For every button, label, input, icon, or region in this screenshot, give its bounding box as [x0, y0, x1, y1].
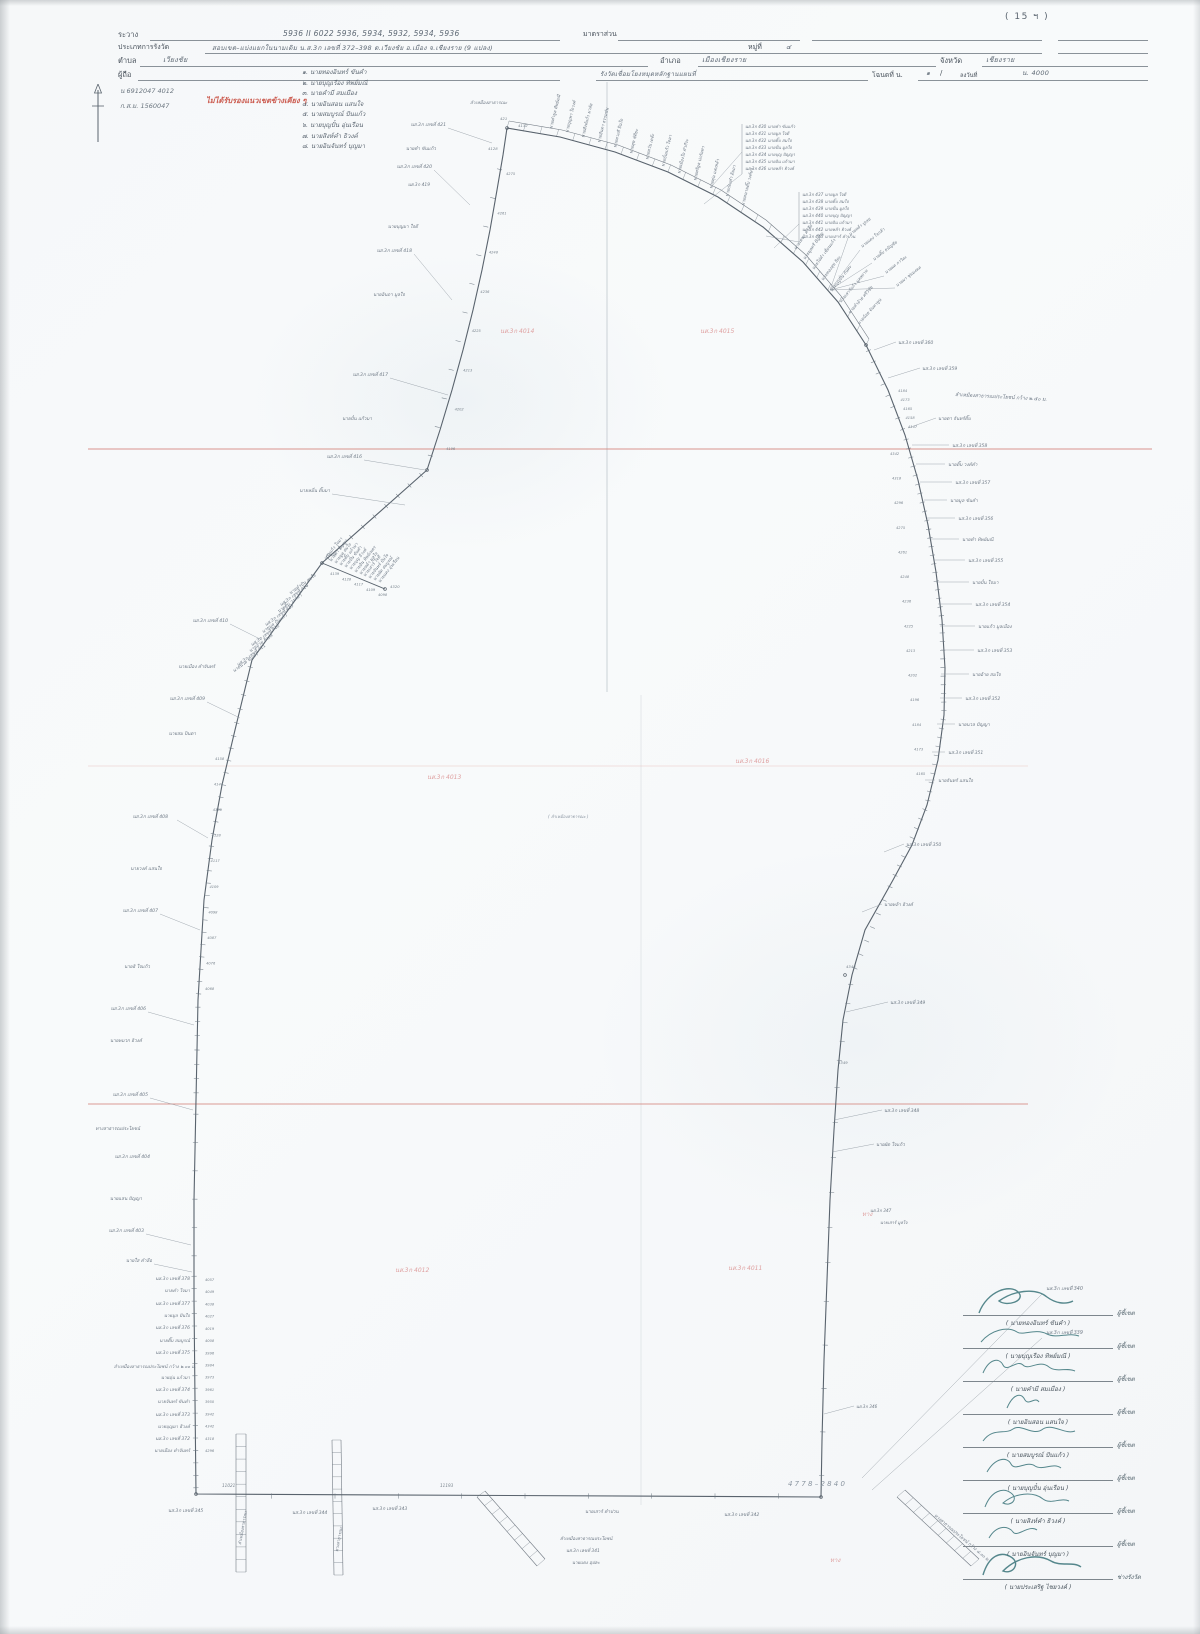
edge-label: นายจันทร์ ขันคำ	[158, 1399, 191, 1405]
signature-stroke	[983, 1427, 1075, 1441]
boundary-tick	[469, 283, 474, 284]
edge-label: นายหล้า ธิวงค์	[884, 901, 914, 908]
edge-label: นส.3ก 434 นายบุญ ปัญญา	[745, 152, 796, 158]
edge-label: นายบุญมา ใจดี	[388, 223, 419, 230]
boundary-tick	[934, 581, 939, 582]
legend-item-5: ๕. นายสมบูรณ์ ปันแก้ว	[302, 110, 367, 121]
scanned-survey-sheet: { "page": { "marker": "( 15 ฯ )" }, "ref…	[0, 0, 1200, 1634]
leader-line	[766, 236, 799, 242]
road-hatch	[573, 133, 575, 140]
station-number: 4213	[906, 649, 916, 653]
boundary-tick	[917, 493, 922, 494]
edge-label: นส.3ก 433 นายปั๋น มูลใจ	[745, 144, 792, 151]
station-number: 4296	[205, 1449, 215, 1453]
edge-label: ( ลำเหมืองสาธารณะ )	[548, 814, 589, 819]
edge-label: นายแดง อุปละ	[572, 1560, 600, 1566]
pink-parcel-code: นส.3ก 4016	[735, 758, 769, 765]
leader-line	[874, 342, 896, 350]
station-number: 4225	[472, 329, 482, 333]
header-rule-6	[140, 66, 648, 67]
edge-label: 11193	[440, 1483, 454, 1488]
boundary-tick	[936, 598, 941, 599]
station-number: 3984	[205, 1364, 215, 1368]
header-value-14: รังวัดเชื่อมโยงหมุดหลักฐานแผนที่	[600, 69, 696, 79]
signature-stroke	[979, 1289, 1073, 1313]
boundary-marker-dot	[844, 974, 847, 977]
road-hatch	[817, 271, 820, 278]
edge-label: ทางสาธารณะ	[334, 1526, 343, 1553]
station-number: 4184	[912, 723, 922, 727]
boundary-tick	[870, 926, 875, 928]
station-number: 4158	[906, 416, 916, 420]
road-hatch	[492, 1508, 500, 1514]
signature-name: ( นายประเสริฐ ไชยวงค์ )	[963, 1582, 1113, 1592]
edge-label: นายเสาร์ คำปวน	[585, 1508, 619, 1515]
leader-line	[448, 128, 492, 143]
station-number: 4098	[208, 910, 218, 914]
boundary-tick	[939, 615, 944, 616]
header-rule-11	[918, 80, 1148, 81]
edge-label: นส.3ก เลขที่ 405	[113, 1091, 148, 1098]
station-number: 4117	[354, 583, 364, 587]
road-hatch	[507, 1525, 515, 1532]
station-number: 4165	[916, 772, 926, 776]
edge-label: นส.3ก 438 นายติ๊บ สมใจ	[802, 198, 849, 204]
station-number: 4261	[497, 211, 506, 215]
station-number: 4076	[206, 961, 216, 965]
station-number: 4173	[914, 747, 924, 751]
road-hatch	[540, 127, 542, 134]
station-number: 4049	[205, 1290, 215, 1294]
station-number: 4027	[205, 1315, 215, 1319]
road-hatch	[652, 159, 655, 166]
road-hatch	[589, 138, 591, 145]
edge-label: นส.3ก เลขที่ 353	[977, 647, 1012, 654]
edge-label: นส.3ก เลขที่ 354	[975, 601, 1010, 608]
station-number: 4173	[901, 398, 911, 402]
signature-stroke	[987, 1459, 1061, 1472]
edge-label: นายธิ ใจแก้ว	[124, 963, 150, 970]
station-number: 3996	[205, 1351, 215, 1355]
road-hatch	[522, 1542, 530, 1549]
boundary-tick	[930, 555, 935, 556]
edge-label: นส.3ก เลขที่ 345	[168, 1507, 203, 1514]
station-number: 4109	[209, 885, 219, 889]
header-rule-5	[1058, 53, 1148, 54]
header-rule-2	[812, 40, 1042, 41]
leader-line	[884, 844, 904, 852]
edge-label: นส.3ก เลขที่ 350	[906, 841, 941, 848]
header-value-16: ๑	[926, 68, 930, 78]
signature-role: ผู้ชี้เขต	[1117, 1341, 1135, 1351]
edge-label: นายอ้าย สมใจ	[972, 671, 1001, 678]
edge-label: นส.3ก เลขที่ 349	[890, 999, 925, 1006]
leader-line	[824, 1406, 854, 1414]
edge-label: นายหมวก ธิวงค์	[110, 1037, 143, 1044]
station-number: 4165	[903, 407, 913, 411]
edge-label: นายอินตา ธรรมขัน	[596, 106, 611, 143]
edge-label: นส.3ก เลขที่ 357	[955, 479, 990, 486]
leader-line	[146, 1234, 191, 1245]
pink-parcel-code: นส.3ก 4011	[728, 1265, 762, 1272]
leader-line	[414, 254, 452, 300]
station-number: 4202	[455, 408, 465, 412]
legend-item-7: ๗. นายสิงห์คำ ธิวงค์	[302, 132, 367, 143]
signature-scribble	[977, 1415, 1097, 1449]
station-number: 4196	[910, 698, 920, 702]
edge-label: นส.3ก เลขที่ 377	[155, 1300, 190, 1307]
edge-label: 4319	[326, 552, 336, 557]
road-hatch	[477, 1491, 485, 1497]
edge-label: นส.3ก 419	[408, 182, 431, 188]
boundary-tick	[931, 563, 936, 564]
edge-label: นายนวล ปัญญา	[958, 722, 990, 728]
header-rule-3	[1058, 40, 1148, 41]
station-number: 4147	[908, 425, 918, 429]
road-hatch	[530, 1551, 538, 1558]
edge-label: นายผัด ใจแก้ว	[876, 1141, 905, 1148]
station-number: 4158	[215, 757, 225, 761]
edge-label: นายดวงดี ปินใจ	[612, 118, 625, 149]
ref-line-2: ก.ส.ม. 1560047	[120, 99, 174, 114]
edge-label: นส.3ก 436 นายหล้า ธิวงค์	[745, 166, 795, 171]
edge-label: นายปั๋น ใจมา	[972, 579, 999, 586]
signature-scribble	[977, 1349, 1097, 1383]
station-number: 4139	[330, 572, 340, 576]
station-number: 4019	[205, 1327, 215, 1331]
edge-label: นส.3ก 431 นายมูล ใจดี	[745, 131, 790, 137]
pink-parcel-code: นส.3ก 4012	[395, 1267, 429, 1274]
edge-label: ลำเหมืองสาธารณประโยชน์ กว้าง ๒.๐๐ ม.	[114, 1363, 196, 1370]
ref-line-1: น 6912047 4012	[120, 84, 174, 99]
station-number: 4275	[896, 526, 906, 530]
header-label-2: มาตราส่วน	[583, 29, 617, 40]
boundary-tick	[929, 546, 934, 547]
leader-line	[832, 1144, 874, 1152]
signature-block: ( นายทองอินทร์ ขันคำ )ผู้ชี้เขต( นายบุญเ…	[955, 1228, 1190, 1623]
station-number: 4342	[205, 1425, 215, 1429]
page-number-marker: ( 15 ฯ )	[1005, 9, 1049, 23]
road-hatch	[537, 1559, 545, 1566]
edge-label: ลำเหมืองสาธารณประโยชน์	[560, 1536, 613, 1542]
edge-label: นายติ๊บ ธนัญชัย	[871, 239, 899, 263]
edge-label: นายเสาร์ มูลใจ	[880, 1220, 908, 1226]
leader-line	[207, 702, 240, 718]
road-hatch	[515, 1534, 523, 1541]
legend-item-8: ๘. นายอินจันทร์ บุญมา	[302, 142, 367, 153]
edge-label: นายหนานติ๊บ วงค์ษา	[739, 167, 755, 207]
header-label-13: ผู้ถือ	[118, 69, 131, 81]
edge-label: 4128	[488, 146, 498, 151]
edge-label: นส.3ก เลขที่ 378	[155, 1275, 190, 1282]
edge-label: นส.3ก เลขที่ 360	[898, 339, 933, 346]
station-number: 4236	[902, 600, 912, 604]
station-number: 4008	[205, 1339, 215, 1343]
leader-line	[846, 1002, 888, 1012]
signature-line	[963, 1579, 1113, 1580]
edge-label: นส.3ก เลขที่ 416	[327, 453, 362, 460]
header-label-18: ลงวันที่	[960, 70, 977, 80]
boundary-tick	[908, 457, 913, 458]
station-number: 4068	[205, 987, 215, 991]
station-number: 3961	[205, 1388, 214, 1392]
edge-label: นส.3ก 440 นายบุญ ปัญญา	[802, 213, 853, 219]
edge-label: นส.3ก 441 นายอิน แก้วมา	[802, 220, 852, 225]
edge-label: นส.3ก เลขที่ 403	[109, 1227, 144, 1234]
road-edge	[332, 1440, 334, 1575]
signature-scribble	[977, 1448, 1097, 1482]
header-value-8: เวียงชัย	[163, 55, 188, 66]
survey-reference-numbers: น 6912047 4012 ก.ส.ม. 1560047	[120, 84, 174, 114]
legend-item-4: ๔. นายอินสอน แสนใจ	[302, 100, 367, 111]
leader-line	[154, 1264, 192, 1272]
edge-label: นายเมือง คำจันทร์	[179, 663, 216, 670]
edge-label: นายคำมูล ทิพย์มณี	[548, 93, 563, 129]
signature-role: ผู้ชี้เขต	[1117, 1473, 1135, 1483]
edge-label: นส.3ก เลขที่ 404	[115, 1153, 150, 1160]
edge-label: นายบุญมา ธิวงค์	[158, 1424, 191, 1430]
leader-line	[390, 378, 448, 395]
header-label-3: ประเภทการรังวัด	[118, 42, 169, 53]
station-number: 4213	[463, 368, 473, 372]
edge-label: นส.3ก 346	[856, 1404, 878, 1409]
header-label-5: หมู่ที่	[748, 42, 762, 53]
edge-label: นายติ๊บ วงค์คำ	[948, 461, 978, 468]
edge-label: นายคำ ขันแก้ว	[406, 146, 437, 152]
station-number: 4248	[489, 251, 499, 255]
edge-label: นส.3ก 430 นายคำ ขันแก้ว	[745, 124, 796, 129]
edge-label: นส.3ก เลขที่ 342	[724, 1511, 759, 1518]
boundary-tick	[927, 538, 932, 539]
header-rule-7	[698, 66, 936, 67]
boundary-tick	[938, 607, 943, 608]
station-number: 4098	[378, 593, 388, 597]
edge-label: นายติ๊บ สมบูรณ์	[159, 1337, 191, 1344]
road-hatch	[668, 165, 671, 172]
edge-label: นายวงค์ แสนใจ	[130, 865, 162, 872]
edge-label: นายแก้ว มูลเมือง	[978, 624, 1012, 630]
edge-label: นส.3ก 437 นายมูล ใจดี	[802, 192, 847, 198]
edge-label: นายศรีมูล ปงกันทา	[692, 145, 707, 181]
boundary-tick	[490, 197, 495, 198]
edge-label: นายแสน ปัญญา	[110, 1196, 143, 1202]
leader-line	[834, 1110, 882, 1120]
edge-label: นส.3ก เลขที่ 406	[111, 1005, 146, 1012]
header-value-19: น. 4000	[1022, 68, 1049, 78]
edge-label: นายมูล ปันใจ	[164, 1312, 191, 1319]
edge-label: นายหวัน เตจ๊ะ	[644, 133, 656, 161]
header-value-12: เชียงราย	[986, 55, 1015, 66]
edge-label: นส.3ก เลขที่ 372	[155, 1435, 190, 1442]
edge-label: 4132	[518, 123, 528, 128]
edge-label: นส.3ก เลขที่ 375	[155, 1349, 190, 1356]
boundary-tick	[935, 589, 940, 590]
pink-parcel-code: นส.3ก 4013	[427, 774, 461, 781]
header-label-11: จังหวัด	[940, 55, 962, 67]
owner-legend-list: ๑. นายทองอินทร์ ขันคำ๒. นายบุญเรือง ทิพย…	[302, 68, 367, 153]
signature-role: ผู้ชี้เขต	[1117, 1407, 1135, 1417]
boundary-tick	[864, 940, 869, 942]
road-hatch	[922, 1513, 930, 1520]
parcel-boundary	[194, 128, 945, 1497]
header-rule-4	[205, 53, 1042, 54]
edge-label: นส.3ก เลขที่ 343	[372, 1505, 407, 1512]
edge-label: นายจันทร์ แสนใจ	[938, 777, 973, 784]
edge-label: 4349	[838, 1060, 848, 1065]
boundary-tick	[911, 466, 916, 467]
edge-label: นส.3ก 439 นายปั๋น มูลใจ	[802, 205, 849, 212]
edge-label: นายสม ปินตา	[169, 731, 197, 737]
leader-line	[364, 460, 425, 470]
station-number: 4318	[205, 1437, 215, 1441]
station-number: 4139	[213, 808, 223, 812]
boundary-tick	[932, 572, 937, 573]
edge-label: นส.3ก 442 นายหล้า ธิวงค์	[802, 227, 852, 232]
edge-label: นายมา ชุ่มมงคล	[895, 265, 923, 289]
signature-scribble	[977, 1514, 1097, 1548]
signature-scribble	[977, 1481, 1097, 1515]
edge-label: นายเมือง คำจันทร์	[154, 1448, 191, 1454]
signature-scribble	[977, 1382, 1097, 1416]
boundary-tick	[920, 502, 925, 503]
legend-item-1: ๑. นายทองอินทร์ ขันคำ	[302, 68, 367, 79]
header-rule-10	[596, 80, 868, 81]
signature-stroke	[981, 1329, 1079, 1342]
edge-label: นส.3ก เลขที่ 356	[958, 515, 993, 522]
edge-label: นายตุ่น แสงหล้า	[708, 158, 721, 189]
edge-label: นส.3ก เลขที่ 374	[155, 1386, 190, 1393]
road-hatch	[946, 1536, 954, 1543]
legend-item-6: ๖. นายบุญปั๋น อุ่นเรือน	[302, 121, 367, 132]
signature-stroke	[983, 1360, 1075, 1373]
edge-label: นส.3ก เลขที่ 409	[170, 695, 205, 702]
road-hatch	[683, 172, 686, 179]
station-number: 4128	[212, 834, 222, 838]
signature-role: ผู้ชี้เขต	[1117, 1308, 1135, 1318]
boundary-tick	[882, 899, 887, 901]
edge-label: นส.3ก เลขที่ 344	[292, 1509, 327, 1516]
signature-stroke	[985, 1490, 1069, 1507]
road-hatch	[768, 225, 771, 232]
edge-label: นส.3ก 443 นายเสาร์ คำปวน	[802, 234, 855, 239]
edge-label: นายอินถา มูลใจ	[373, 291, 405, 298]
edge-label: นส.3ก เลขที่ 410	[193, 617, 228, 624]
signature-role: ผู้ชี้เขต	[1117, 1539, 1135, 1549]
header-rule-0	[150, 40, 560, 41]
road-hatch	[637, 153, 640, 160]
edge-label: นายมูล ขันคำ	[950, 498, 978, 504]
road-hatch	[897, 1490, 905, 1497]
boundary-tick	[449, 369, 454, 370]
road-hatch	[556, 129, 558, 136]
leader-line	[148, 1012, 194, 1025]
road-hatch	[621, 147, 624, 154]
pink-parcel-code: ทาง	[862, 1211, 873, 1218]
station-number: 4038	[205, 1302, 215, 1306]
edge-label: นายปั๋นแก้ว ใจมา	[659, 134, 674, 168]
station-number: 4087	[207, 936, 217, 940]
leader-line	[888, 368, 920, 378]
station-number: 4318	[892, 477, 902, 481]
header-label-15: โฉนดที่ น.	[872, 69, 903, 80]
edge-label: ลำเหมืองสาธารณะ	[470, 100, 508, 106]
edge-label: นายคำ ทิพย์มณี	[962, 536, 994, 543]
pink-parcel-code: นส.3ก 4014	[500, 328, 534, 335]
legend-item-2: ๒. นายบุญเรือง ทิพย์มณี	[302, 79, 367, 90]
leader-line	[230, 624, 262, 640]
signature-scribble	[977, 1283, 1097, 1317]
edge-label: นายสิงห์แก้ว มาลัย	[580, 103, 594, 139]
boundary-tick	[939, 728, 944, 729]
edge-label: นส.3ก เลขที่ 421	[411, 121, 446, 128]
boundary-tick	[858, 954, 863, 956]
boundary-tick	[876, 913, 881, 915]
boundary-tick	[483, 226, 488, 227]
edge-label: นส.3ก เลขที่ 348	[884, 1107, 919, 1114]
boundary-tick	[927, 791, 932, 792]
edge-label: ทางสาธารณประโยชน์	[95, 1125, 141, 1132]
station-number: 4225	[904, 624, 914, 628]
north-arrow-icon	[88, 84, 108, 146]
leader-line	[177, 820, 208, 838]
station-number: 3942	[205, 1412, 215, 1416]
signature-role: ผู้ชี้เขต	[1117, 1506, 1135, 1516]
legend-item-3: ๓. นายคำมี สมเมือง	[302, 89, 367, 100]
boundary-tick	[442, 398, 447, 399]
edge-label: นส.3ก เลขที่ 355	[968, 557, 1003, 564]
boundary-tick	[910, 837, 915, 839]
edge-label: ลำเหมืองสาธารณประโยชน์ กว้าง ๒.๕๐ ม.	[955, 391, 1047, 403]
leader-line	[160, 914, 200, 930]
station-number: 4248	[900, 575, 910, 579]
header-label-0: ระวาง	[118, 29, 138, 41]
station-number: 3950	[205, 1400, 215, 1404]
edge-label: นส.3ก เลขที่ 373	[155, 1411, 190, 1418]
station-number: 4109	[366, 588, 376, 592]
boundary-tick	[476, 255, 481, 256]
edge-label: นส.3ก 435 นายอิน แก้วมา	[745, 159, 795, 164]
edge-label: 11021	[222, 1483, 236, 1488]
edge-label: นายคำ ใจมา	[164, 1287, 190, 1294]
signature-role: ผู้ชี้เขต	[1117, 1374, 1135, 1384]
station-number: 4296	[894, 501, 904, 505]
edge-label: นส.3ก เลขที่ 417	[353, 371, 388, 378]
boundary-tick	[456, 341, 461, 342]
header-label-7: ตำบล	[118, 55, 136, 67]
signature-stroke	[989, 1527, 1037, 1538]
leader-line	[830, 288, 895, 290]
edge-label: นส.3ก เลขที่ 341	[566, 1547, 600, 1554]
road-hatch	[938, 1528, 946, 1535]
station-number: 4236	[480, 290, 490, 294]
edge-label: นส.3ก เลขที่ 420	[397, 163, 432, 170]
leader-line	[862, 904, 882, 912]
edge-label: นายอุ่น แก้วมา	[161, 1375, 191, 1381]
road-edge	[341, 1440, 343, 1575]
station-number: 4196	[446, 447, 456, 451]
edge-label: นายนวล ขันคำ	[232, 651, 260, 674]
boundary-tick	[926, 529, 931, 530]
road-hatch	[698, 180, 701, 187]
signature-role: ผู้ชี้เขต	[1117, 1440, 1135, 1450]
station-number: 4261	[898, 550, 907, 554]
header-value-10: เมืองเชียงราย	[702, 55, 746, 66]
edge-label: นายหมื่น ติ๊บมา	[299, 487, 330, 494]
road-hatch	[913, 1505, 921, 1512]
edge-label: นส.3ก เลขที่ 359	[922, 365, 957, 372]
station-number: 4147	[214, 783, 224, 787]
edge-label: 4348	[846, 964, 856, 969]
